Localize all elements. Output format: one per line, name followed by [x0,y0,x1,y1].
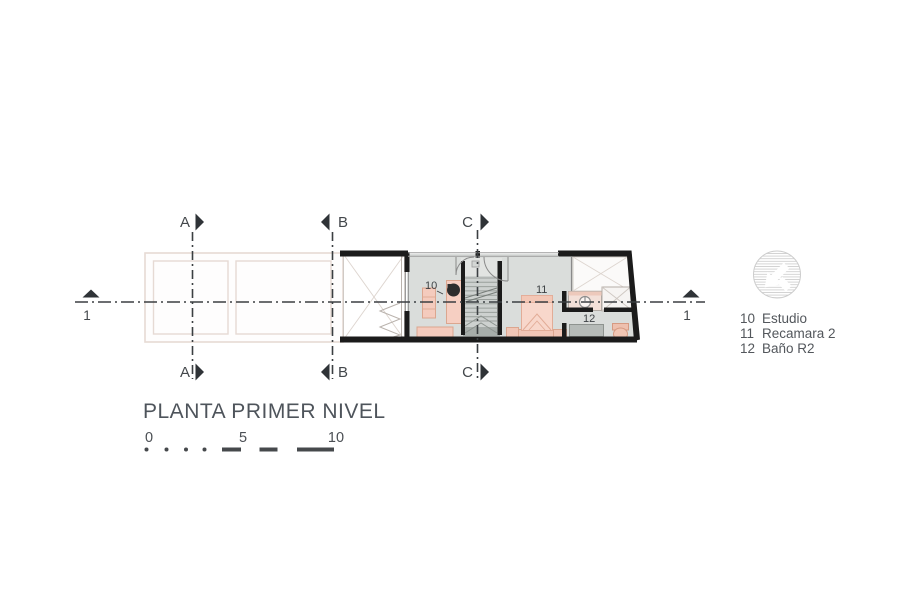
legend-name: Baño R2 [762,341,815,356]
section-marker-c-bottom: C [462,364,489,382]
logo [754,251,801,298]
drawing-sheet: 10 11 12 A A B B C C [0,0,920,597]
section-a-top-arrow-icon [196,214,205,231]
scale-0-label: 0 [145,430,153,446]
legend-num: 12 [740,341,762,356]
section-c-bottom-label: C [462,364,473,381]
stair-stringer-left [461,261,465,335]
axis-1-left-arrow-icon [83,290,100,298]
section-marker-b-top: B [321,214,348,232]
estudio-label: 10 [425,280,437,292]
lounge-chair [423,288,436,318]
legend-item-estudio: 10 Estudio [740,311,836,326]
shelf [417,327,453,337]
axis-marker-1-right: 1 [683,290,700,324]
legend-name: Estudio [762,311,807,326]
terrace-outline [145,253,343,342]
axis-1-right-arrow-icon [683,290,700,298]
staircase [461,258,502,336]
section-marker-b-bottom: B [321,364,348,382]
section-c-bottom-arrow-icon [481,364,490,381]
section-b-top-label: B [338,214,348,231]
scale-bar: 0 5 10 [145,430,345,452]
legend-item-bano: 12 Baño R2 [740,341,836,356]
vanity-counter [570,325,604,337]
section-a-top-label: A [180,214,190,231]
scale-5-label: 5 [239,430,247,446]
legend-name: Recamara 2 [762,326,836,341]
stair-stringer-right [498,261,503,335]
legend-num: 10 [740,311,762,326]
room-legend: 10 Estudio 11 Recamara 2 12 Baño R2 [740,311,836,356]
section-a-bottom-arrow-icon [196,364,205,381]
void-open-to-below [344,254,405,340]
section-b-top-arrow-icon [321,214,330,231]
bano-label: 12 [583,313,595,325]
recamara-label: 11 [536,284,547,296]
axis-marker-1-left: 1 [83,290,100,324]
section-marker-c-top: C [462,214,489,232]
floor-plan-canvas: 10 11 12 A A B B C C [0,0,920,597]
scale-10-label: 10 [328,430,344,446]
section-c-top-label: C [462,214,473,231]
section-a-bottom-label: A [180,364,190,381]
void-top-right [572,257,632,291]
section-b-bottom-label: B [338,364,348,381]
section-c-top-arrow-icon [481,214,490,231]
axis-1-right-label: 1 [683,308,691,323]
section-marker-a-top: A [180,214,204,232]
section-b-bottom-arrow-icon [321,364,330,381]
legend-num: 11 [740,326,762,341]
legend-item-recamara: 11 Recamara 2 [740,326,836,341]
page-title: PLANTA PRIMER NIVEL [143,400,386,424]
axis-1-left-label: 1 [83,308,91,323]
